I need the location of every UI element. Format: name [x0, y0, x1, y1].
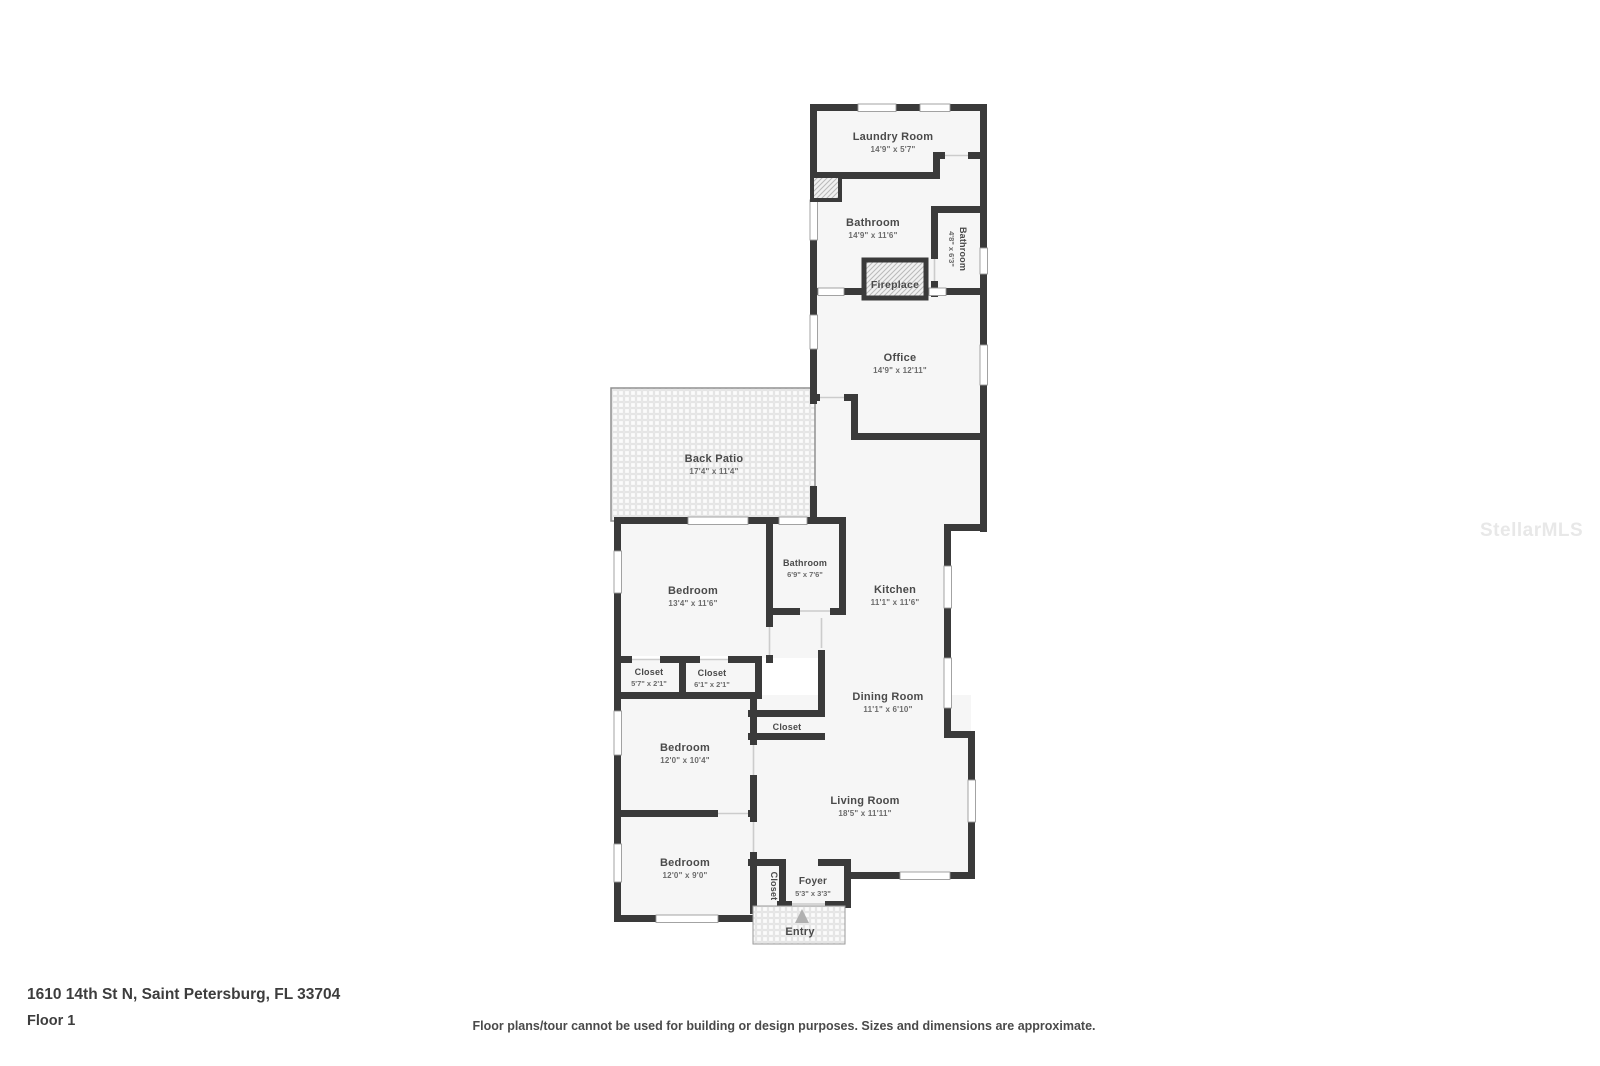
- room-dims-bedroom-3: 12'0" x 9'0": [663, 871, 708, 880]
- room-label-bedroom-1: Bedroom: [668, 585, 718, 597]
- room-label-bedroom-2: Bedroom: [660, 742, 710, 754]
- floor-label: Floor 1: [27, 1013, 75, 1029]
- room-dims-laundry: 14'9" x 5'7": [871, 145, 916, 154]
- room-label-foyer: Foyer: [799, 876, 827, 887]
- room-label-dining: Dining Room: [852, 691, 923, 703]
- floor-plan-page: Laundry Room 14'9" x 5'7" Bathroom 14'9"…: [0, 0, 1600, 1066]
- room-dims-back-patio: 17'4" x 11'4": [689, 467, 738, 476]
- room-dims-closet-2: 6'1" x 2'1": [694, 680, 730, 689]
- watermark: StellarMLS: [1480, 520, 1583, 541]
- room-label-closet-1: Closet: [635, 667, 664, 677]
- room-label-closet-foyer: Closet: [769, 872, 779, 901]
- room-label-back-patio: Back Patio: [685, 453, 744, 465]
- room-dims-closet-1: 5'7" x 2'1": [631, 679, 667, 688]
- room-label-kitchen: Kitchen: [874, 584, 916, 596]
- room-dims-foyer: 5'3" x 3'3": [795, 889, 831, 898]
- floor-plan-svg: Laundry Room 14'9" x 5'7" Bathroom 14'9"…: [0, 0, 1600, 1066]
- room-dims-bathroom-main: 14'9" x 11'6": [848, 231, 897, 240]
- entry-area: [753, 906, 845, 944]
- room-dims-living: 18'5" x 11'11": [838, 809, 891, 818]
- chimney-box: [812, 176, 840, 200]
- room-dims-office: 14'9" x 12'11": [873, 366, 927, 375]
- room-label-closet-living: Closet: [773, 722, 802, 732]
- room-dims-bedroom-1: 13'4" x 11'6": [668, 599, 717, 608]
- footer: 1610 14th St N, Saint Petersburg, FL 337…: [27, 986, 1096, 1033]
- room-label-living: Living Room: [830, 795, 899, 807]
- room-label-laundry: Laundry Room: [853, 131, 934, 143]
- room-dims-dining: 11'1" x 6'10": [863, 705, 912, 714]
- room-label-entry: Entry: [785, 926, 815, 938]
- room-dims-kitchen: 11'1" x 11'6": [871, 598, 920, 607]
- room-label-closet-2: Closet: [698, 668, 727, 678]
- room-label-bedroom-3: Bedroom: [660, 857, 710, 869]
- room-label-bathroom-small: Bathroom: [958, 227, 968, 271]
- room-label-fireplace: Fireplace: [871, 279, 919, 291]
- room-label-bathroom-main: Bathroom: [846, 217, 900, 229]
- room-dims-bedroom-2: 12'0" x 10'4": [660, 756, 710, 765]
- address-text: 1610 14th St N, Saint Petersburg, FL 337…: [27, 986, 341, 1003]
- room-label-office: Office: [884, 352, 917, 364]
- room-dims-bathroom-hall: 6'9" x 7'6": [787, 570, 823, 579]
- room-label-bathroom-hall: Bathroom: [783, 558, 827, 568]
- disclaimer-text: Floor plans/tour cannot be used for buil…: [472, 1019, 1095, 1033]
- room-dims-bathroom-small: 4'8" x 6'3": [947, 231, 956, 267]
